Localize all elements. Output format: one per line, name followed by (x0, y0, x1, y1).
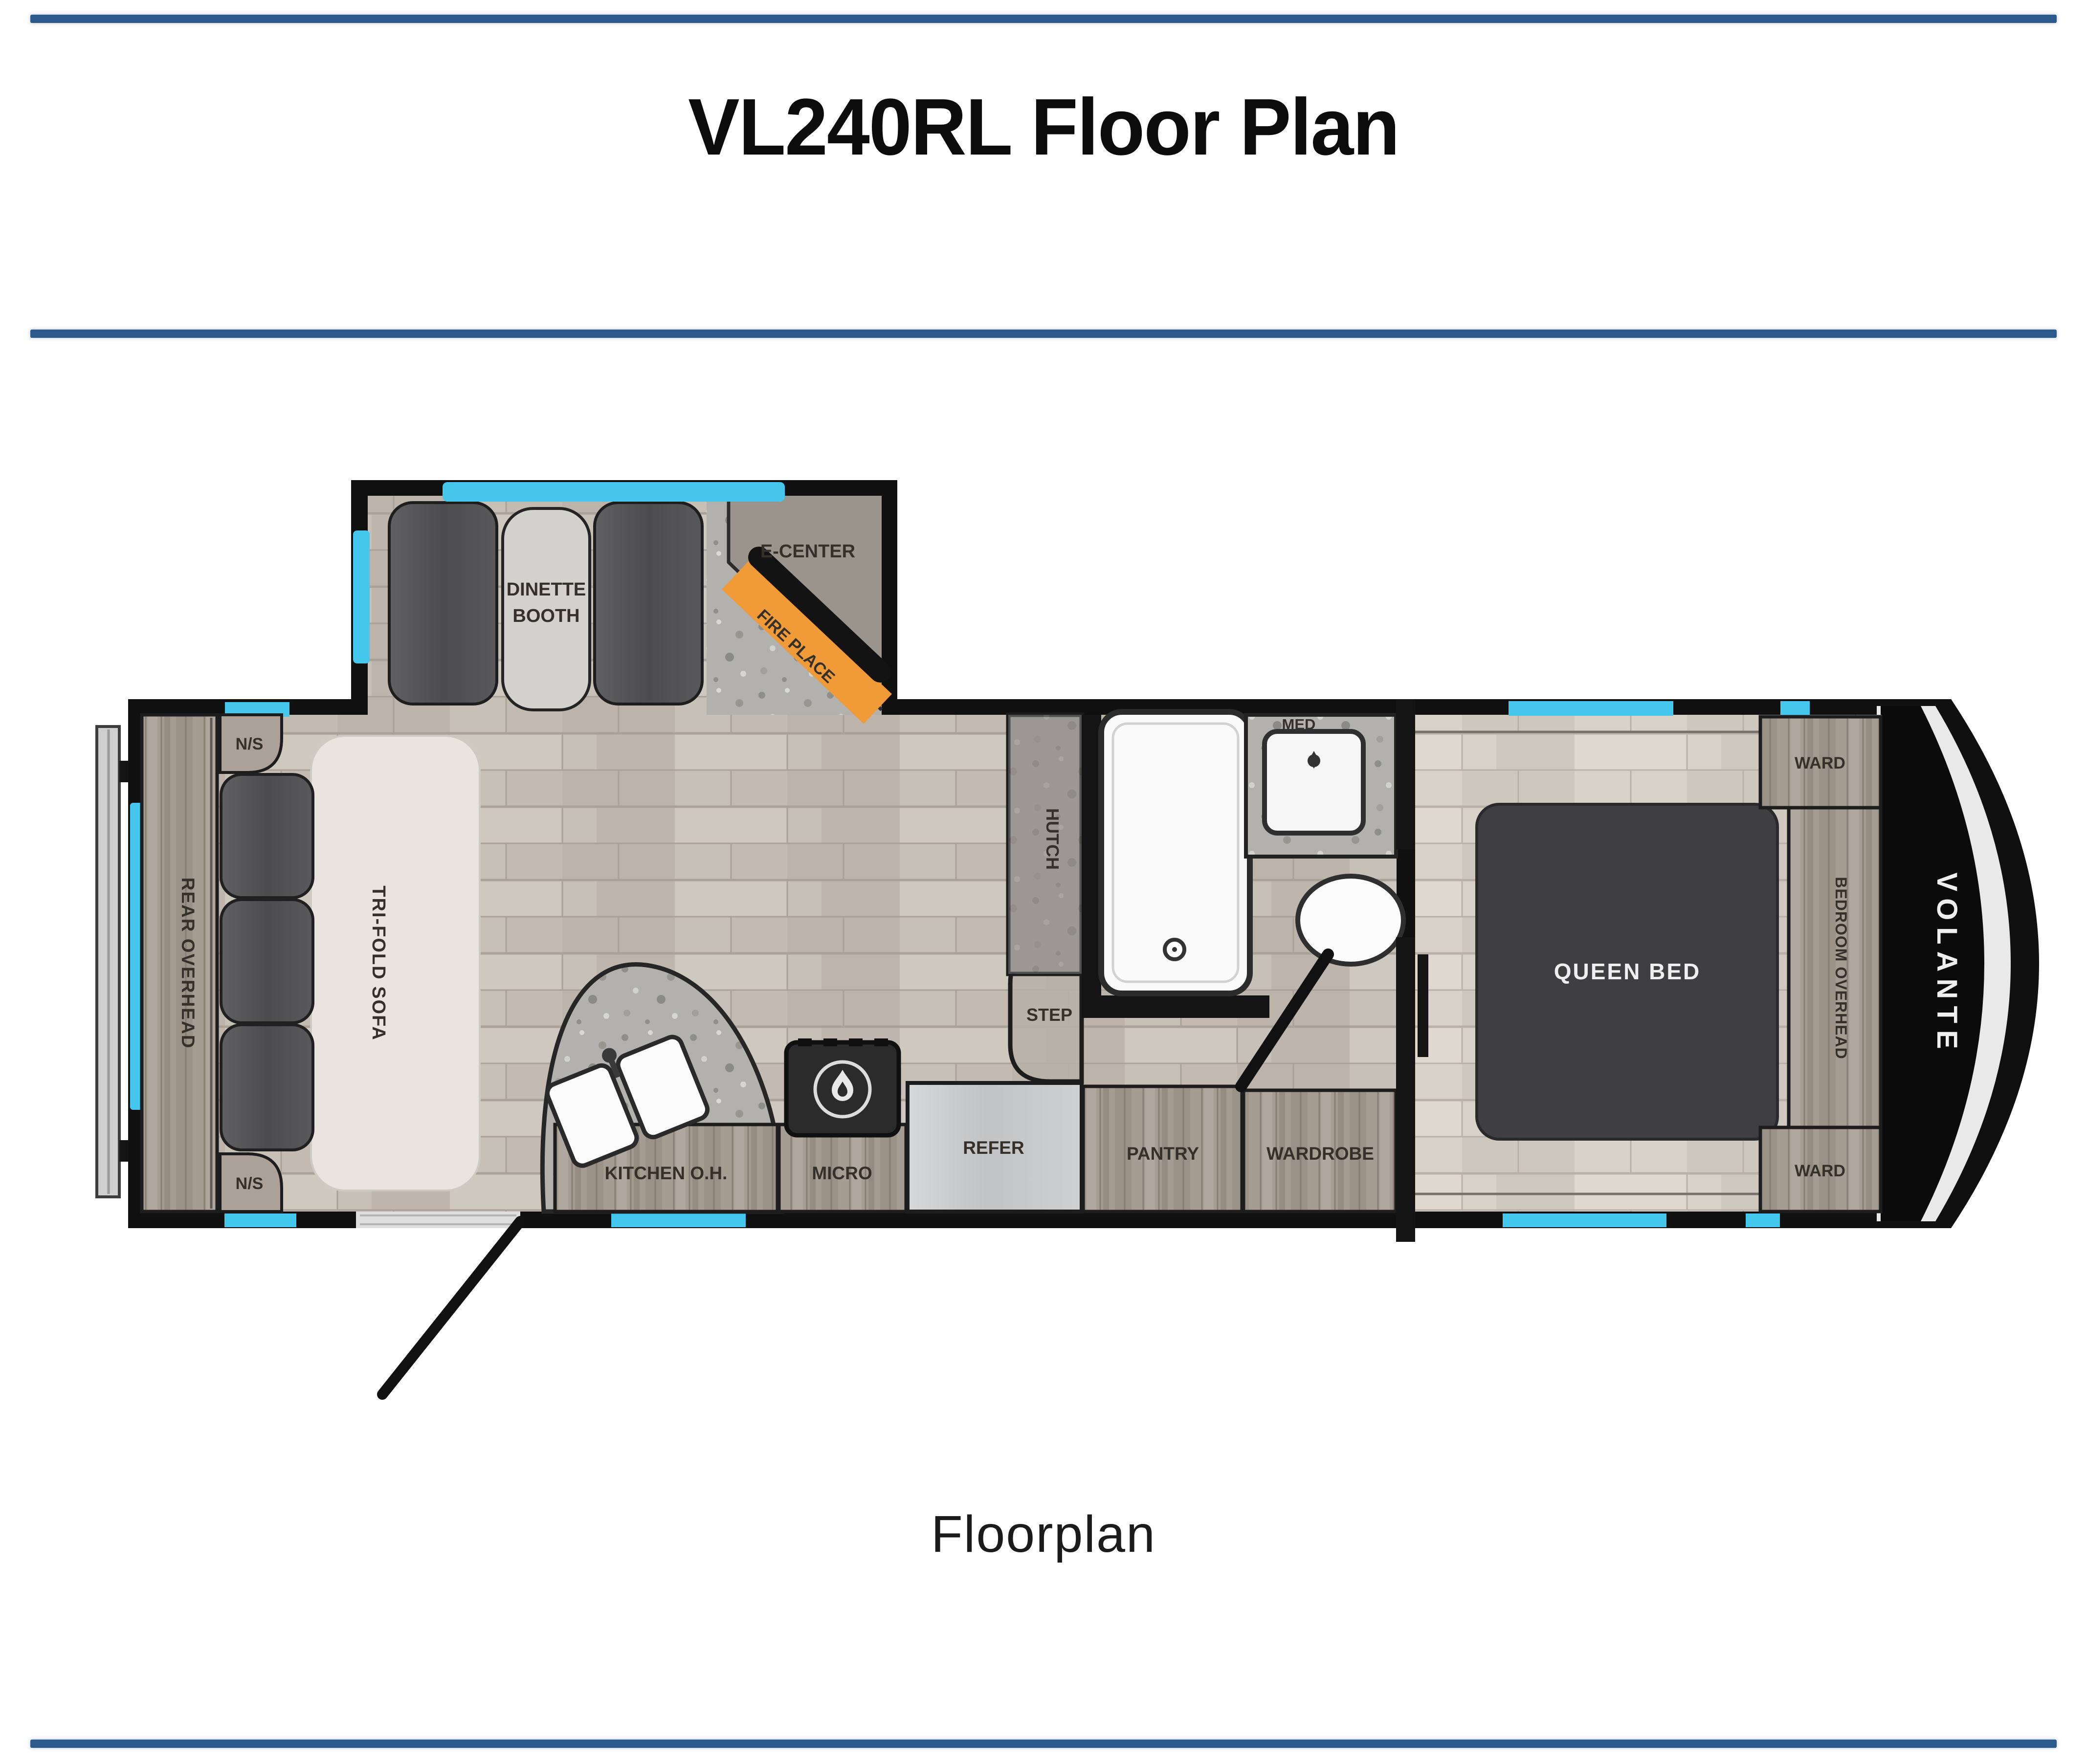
sofa-cushion (221, 900, 313, 1023)
label-pantry: PANTRY (1127, 1144, 1199, 1164)
tri-fold-sofa-mattress (311, 736, 480, 1191)
label-ns-top: N/S (236, 735, 264, 753)
entry-door (356, 1212, 520, 1394)
entry-door-opening (356, 1212, 520, 1228)
label-rear-overhead: REAR OVERHEAD (178, 878, 198, 1049)
label-e-center: E-CENTER (760, 541, 855, 562)
floorplan-diagram: VOLANTE E-CENTER FIRE PLACE DINET (0, 0, 2087, 1764)
bottom-divider-rule (30, 1740, 2057, 1748)
bathroom-wall-bottom (1082, 995, 1269, 1018)
slideout-side-window (353, 530, 370, 663)
sofa-cushion (221, 774, 313, 898)
toilet (1298, 876, 1403, 964)
window-bottom-bedroom (1503, 1213, 1666, 1227)
rear-living-area: REAR OVERHEAD N/S N/S TRI-FOLD SOFA (142, 715, 480, 1212)
label-step: STEP (1026, 1005, 1072, 1025)
brand-volante: VOLANTE (1931, 872, 1963, 1056)
dinette-bench-left (389, 503, 497, 704)
window-bottom-ns (224, 1213, 296, 1227)
sofa-cushion (221, 1025, 313, 1150)
label-ns-bottom: N/S (236, 1174, 264, 1193)
label-refer: REFER (963, 1138, 1024, 1158)
label-bedroom-overhead: BEDROOM OVERHEAD (1832, 877, 1850, 1059)
entry-door-swing (382, 1221, 520, 1394)
tri-fold-sofa (221, 774, 313, 1150)
label-dinette-line1: DINETTE (507, 579, 586, 600)
entertainment-center: E-CENTER FIRE PLACE (707, 496, 882, 715)
window-bottom-bedroom-small (1746, 1213, 1780, 1227)
label-ward-top: WARD (1795, 754, 1845, 772)
label-tri-fold-sofa: TRI-FOLD SOFA (368, 885, 389, 1040)
label-kitchen-oh: KITCHEN O.H. (605, 1163, 728, 1183)
slideout-dinette: E-CENTER FIRE PLACE DINETTE BOOTH (351, 480, 897, 715)
slideout-top-window (443, 482, 785, 502)
label-dinette-line2: BOOTH (512, 606, 579, 626)
window-top-bedroom-small (1780, 701, 1810, 716)
window-top-bedroom (1509, 701, 1673, 716)
window-bottom-kitchen (611, 1213, 746, 1227)
label-wardrobe: WARDROBE (1266, 1144, 1374, 1164)
bath-sink (1265, 731, 1363, 833)
label-queen-bed: QUEEN BED (1554, 959, 1701, 984)
page: VL240RL Floor Plan (0, 0, 2087, 1764)
label-hutch: HUTCH (1043, 808, 1063, 870)
cooktop (786, 1038, 899, 1135)
label-micro: MICRO (812, 1163, 872, 1183)
dinette-bench-right (595, 503, 702, 704)
caption-floorplan: Floorplan (0, 1505, 2087, 1564)
label-ward-bottom: WARD (1795, 1162, 1845, 1180)
